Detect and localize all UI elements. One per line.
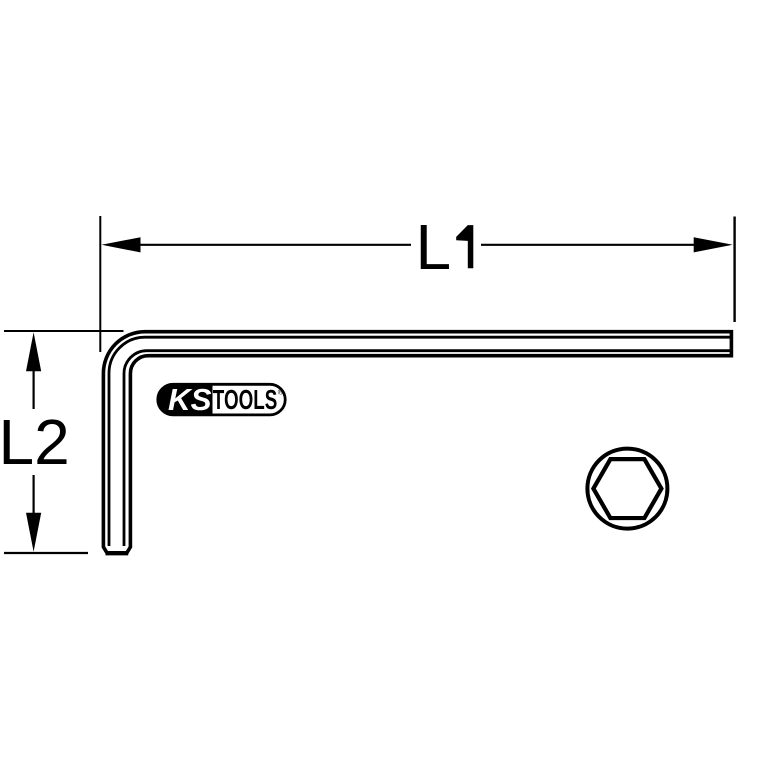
svg-text:KS: KS xyxy=(168,382,212,417)
svg-text:L2: L2 xyxy=(0,406,70,478)
svg-text:L: L xyxy=(416,211,452,283)
svg-text:TOOLS: TOOLS xyxy=(213,384,277,415)
svg-text:®: ® xyxy=(278,387,284,396)
